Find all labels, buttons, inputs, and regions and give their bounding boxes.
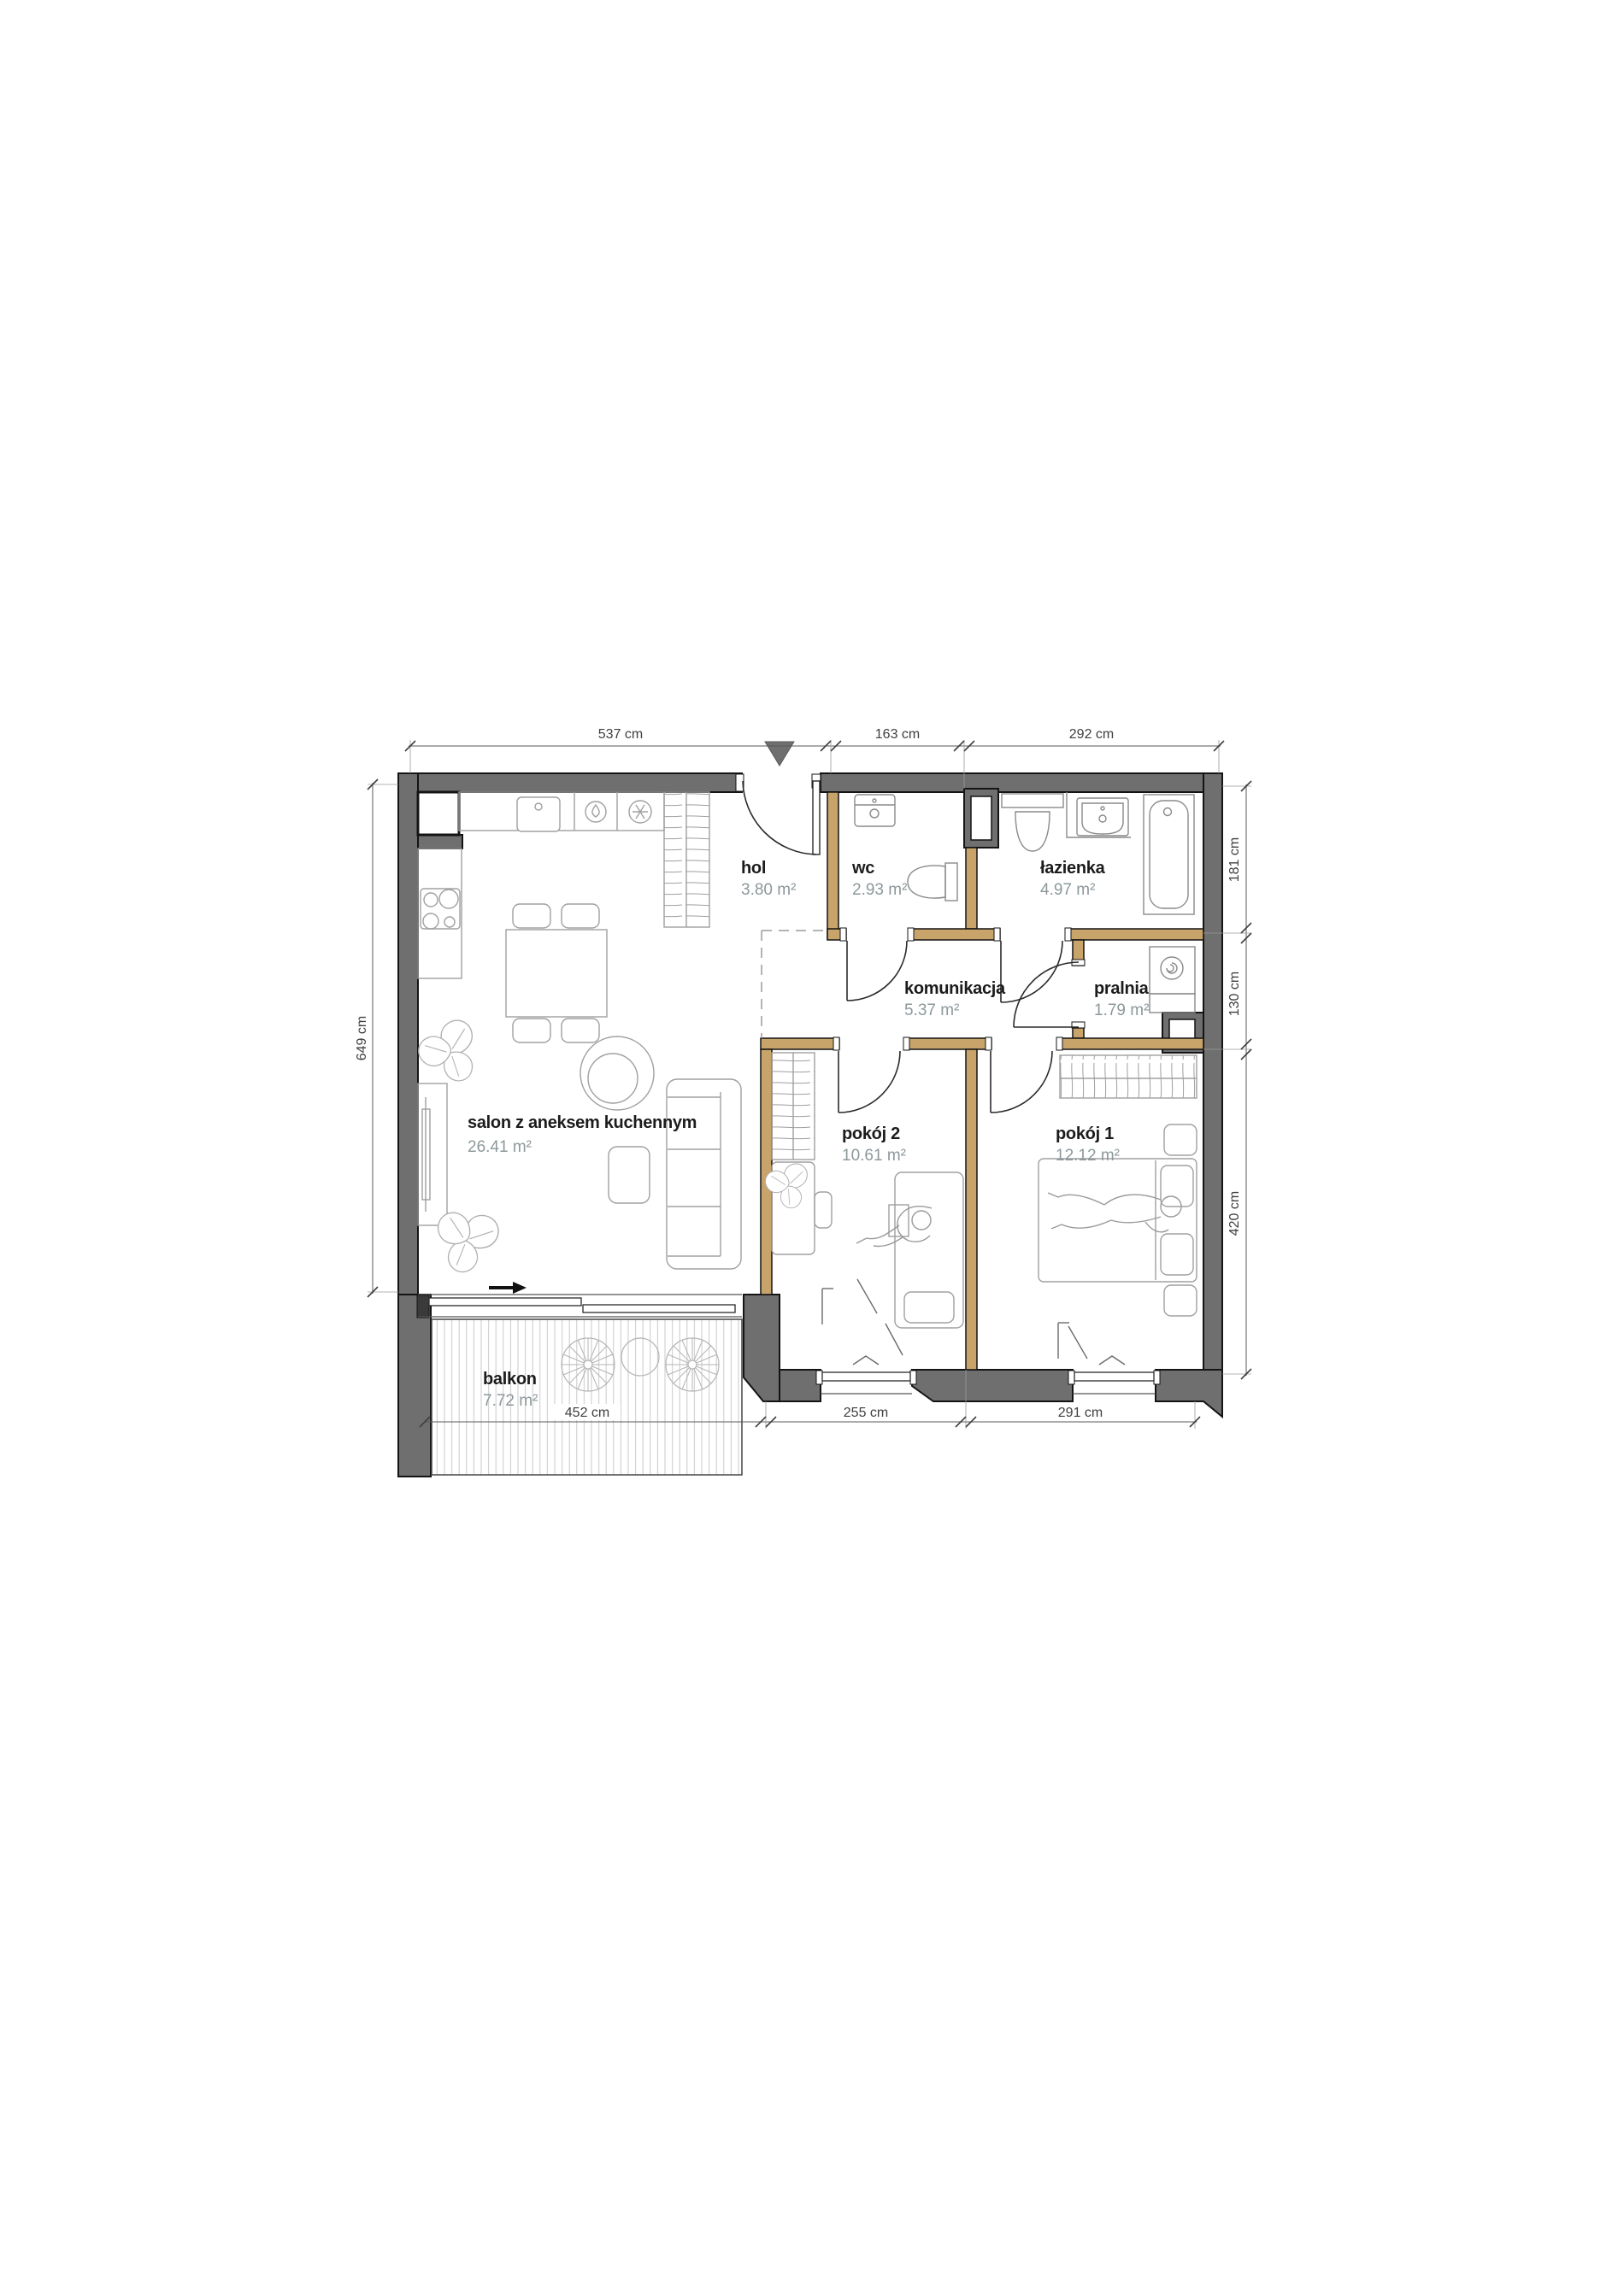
- dishwasher-icon: [585, 802, 606, 822]
- room-area-lazienka: 4.97 m²: [1040, 881, 1095, 899]
- dim-top-292: 292 cm: [1069, 727, 1114, 742]
- lazienka-toilet-icon: [1002, 794, 1063, 851]
- plant-icon: [413, 1016, 477, 1084]
- nightstand: [1164, 1125, 1197, 1155]
- balcony-glazing: [418, 1295, 742, 1317]
- balcony-direction-arrow-icon: [489, 1282, 527, 1294]
- bathtub-icon: [1144, 795, 1194, 914]
- dim-bottom-452: 452 cm: [565, 1406, 609, 1420]
- kitchen-counter: [459, 792, 664, 831]
- hob-icon: [421, 889, 460, 929]
- pokoj1-bed: [1039, 1159, 1197, 1282]
- room-area-pokoj1: 12.12 m²: [1056, 1147, 1120, 1165]
- pokoj1-window: [1058, 1323, 1160, 1394]
- lazienka-door: [1001, 941, 1062, 1002]
- room-label-wc: wc: [851, 859, 874, 878]
- wc-washbasin-icon: [855, 795, 895, 826]
- dim-right-420: 420 cm: [1227, 1191, 1242, 1236]
- floorplan-drawing: 537 cm 163 cm 292 cm 649 cm 181 cm 130 c…: [0, 0, 1624, 2296]
- room-label-lazienka: łazienka: [1040, 859, 1106, 878]
- open-boundary-dashes: [762, 931, 823, 1038]
- wc-door: [847, 941, 907, 1001]
- dim-top-163: 163 cm: [875, 727, 920, 742]
- dining-table: [506, 904, 607, 1042]
- balcony-chair-icon: [666, 1338, 719, 1391]
- kitchen-left-counter: [418, 849, 462, 978]
- room-label-balkon: balkon: [483, 1370, 537, 1389]
- wc-toilet-icon: [908, 863, 957, 901]
- person-sitting-icon: [856, 1207, 932, 1247]
- dim-bottom-255: 255 cm: [844, 1406, 888, 1420]
- balcony-deck: [432, 1319, 742, 1475]
- coffee-table: [609, 1147, 650, 1203]
- room-label-salon: salon z aneksem kuchennym: [468, 1113, 697, 1132]
- room-label-pralnia: pralnia: [1094, 979, 1150, 998]
- entrance-door: [743, 781, 820, 854]
- sofa: [667, 1079, 741, 1269]
- pokoj2-door: [838, 1051, 900, 1113]
- room-label-hol: hol: [741, 859, 766, 878]
- room-area-salon: 26.41 m²: [468, 1138, 532, 1156]
- dim-top-537: 537 cm: [598, 727, 643, 742]
- lazienka-washbasin-icon: [1067, 792, 1131, 837]
- pokoj2-bed: [889, 1172, 963, 1328]
- dim-left-649: 649 cm: [355, 1016, 369, 1060]
- fridge-icon: [629, 801, 651, 823]
- dim-right-181: 181 cm: [1227, 837, 1242, 882]
- pokoj1-door: [991, 1051, 1052, 1113]
- room-label-komunikacja: komunikacja: [904, 979, 1006, 998]
- pokoj2-wardrobe: [772, 1053, 815, 1160]
- room-area-pralnia: 1.79 m²: [1094, 1001, 1149, 1019]
- tv-sideboard: [418, 1083, 447, 1225]
- plant-icon: [415, 1187, 511, 1284]
- entrance-marker-icon: [765, 742, 794, 766]
- pokoj1-wardrobe: [1060, 1055, 1197, 1098]
- room-area-balkon: 7.72 m²: [483, 1392, 538, 1410]
- room-area-hol: 3.80 m²: [741, 881, 796, 899]
- nightstand: [1164, 1285, 1197, 1316]
- room-label-pokoj1: pokój 1: [1056, 1125, 1114, 1143]
- hol-wardrobe: [664, 792, 709, 927]
- armchair: [580, 1036, 654, 1110]
- room-area-komunikacja: 5.37 m²: [904, 1001, 959, 1019]
- balcony-chair-icon: [562, 1338, 615, 1391]
- dim-right-130: 130 cm: [1227, 972, 1242, 1016]
- room-label-pokoj2: pokój 2: [842, 1125, 900, 1143]
- shaft-kitchen: [418, 792, 459, 835]
- room-area-wc: 2.93 m²: [852, 881, 907, 899]
- shaft-wc-lazienka: [964, 789, 998, 848]
- floorplan-page: 537 cm 163 cm 292 cm 649 cm 181 cm 130 c…: [0, 0, 1624, 2296]
- dim-bottom-291: 291 cm: [1058, 1406, 1103, 1420]
- kitchen-sink-icon: [517, 797, 560, 831]
- pokoj2-window: [816, 1279, 916, 1394]
- washing-machine-icon: [1150, 947, 1195, 1013]
- room-area-pokoj2: 10.61 m²: [842, 1147, 906, 1165]
- pralnia-door: [1014, 962, 1079, 1027]
